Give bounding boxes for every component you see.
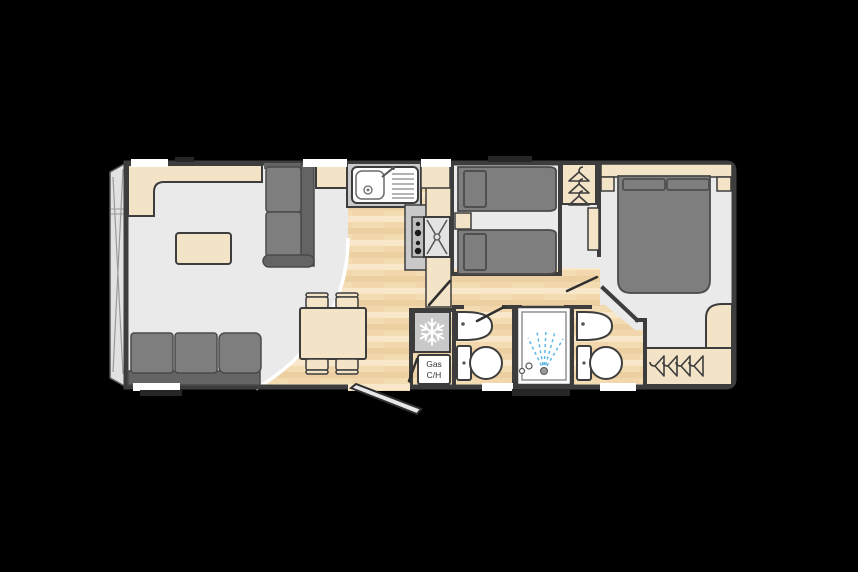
- twin-bedside-table: [455, 213, 471, 229]
- bedside-cabinet-left: [601, 177, 614, 191]
- ensuite-toilet: [577, 346, 622, 380]
- caravan-floorplan: Gas C/H: [0, 0, 858, 572]
- dining-table: [300, 308, 366, 359]
- gas-label-line2: C/H: [427, 370, 442, 380]
- gas-central-heating: Gas C/H: [418, 355, 450, 384]
- kitchen-cabinet: [316, 165, 347, 188]
- front-sofa: [128, 333, 261, 385]
- master-tall-cupboard: [588, 208, 599, 250]
- shower-cubicle: [517, 307, 571, 385]
- fan-oven-icon: [424, 217, 450, 257]
- twin-wardrobe: [562, 164, 596, 205]
- coffee-table: [176, 233, 231, 264]
- kitchen-sink: [352, 166, 418, 203]
- window: [482, 383, 513, 391]
- dining-chair: [336, 370, 358, 374]
- dining-chair: [306, 370, 328, 374]
- master-wardrobe: [646, 348, 732, 385]
- window: [421, 159, 451, 167]
- cooker: [412, 217, 450, 257]
- bedside-cabinet-right: [717, 177, 731, 191]
- window: [303, 159, 347, 167]
- window: [600, 383, 636, 391]
- gas-label-line1: Gas: [426, 359, 442, 369]
- master-headboard-shelf: [601, 164, 732, 177]
- window: [131, 159, 168, 167]
- ensuite-washbasin: [577, 312, 612, 340]
- wc-toilet: [457, 346, 502, 380]
- side-sofa: [263, 163, 314, 267]
- twin-bed-1: [458, 167, 556, 211]
- corner-vanity-unit: [706, 304, 732, 348]
- shower-head: [541, 368, 548, 375]
- fridge: [414, 312, 450, 352]
- window: [133, 383, 180, 391]
- twin-bed-2: [458, 230, 556, 274]
- master-bed: [618, 176, 710, 293]
